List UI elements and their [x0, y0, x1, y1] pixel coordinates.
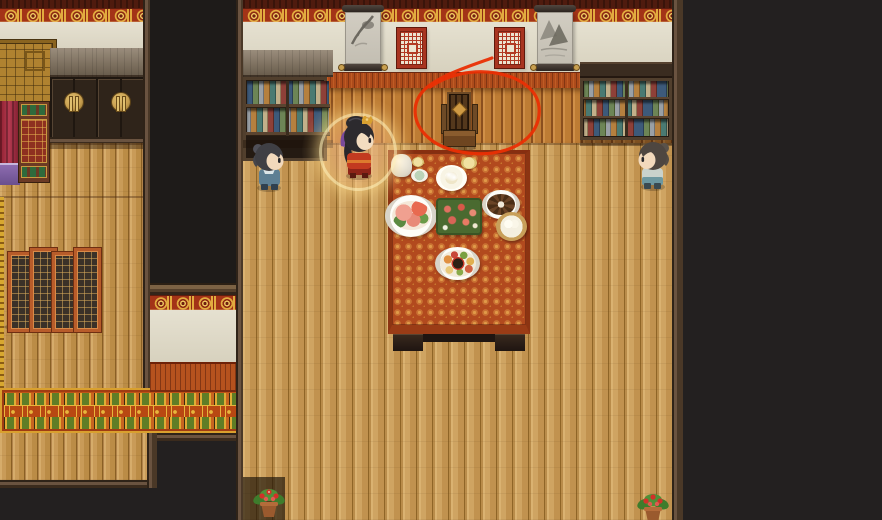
doorway-sill: [143, 283, 243, 295]
ink-art: [345, 12, 381, 64]
table-foot-left: [393, 334, 423, 351]
main-room-right-border: [672, 0, 683, 520]
bed-lattice-panel: [21, 119, 47, 163]
cabinet-base: [50, 137, 96, 143]
cabinet-unit-left[interactable]: [50, 48, 96, 143]
dish-bamboo-steamer: [496, 212, 527, 241]
bed-header-motif: [25, 51, 45, 71]
scroll-paper: [537, 12, 573, 64]
table-foot-right: [495, 334, 525, 351]
dish-small-cup: [412, 157, 424, 167]
cabinet-pull-left: [70, 97, 72, 111]
cabinet-pull-right: [123, 97, 125, 111]
bookshelf-top-slab: [243, 50, 333, 77]
cabinet-pull-right: [76, 97, 78, 111]
scroll-bottom-rod: [534, 64, 576, 71]
scroll-knob-right: [574, 65, 579, 70]
scroll-painting-left: [345, 5, 381, 71]
scroll-knob-left: [339, 65, 344, 70]
player-character[interactable]: [336, 116, 380, 180]
cabinet-doors[interactable]: [50, 77, 100, 141]
bed-canopy-header[interactable]: [0, 40, 56, 107]
cabinet-top-slab: [50, 48, 96, 77]
scroll-knob-left: [531, 65, 536, 70]
scroll-paper: [345, 12, 381, 64]
high-back-chair[interactable]: [441, 92, 478, 152]
cabinet-unit-right[interactable]: [96, 48, 143, 143]
dark-doorway-opening[interactable]: [150, 0, 236, 283]
carpet-bottom-row: [4, 417, 239, 429]
dish-teacup: [411, 169, 428, 182]
shelf-divider: [625, 81, 628, 136]
lattice-window-left: [397, 28, 426, 68]
carpet-bottom-border: [150, 433, 243, 441]
screen-panel-4: [74, 248, 101, 332]
main-room-left-border: [236, 0, 243, 520]
bed-side-panel: [18, 101, 50, 183]
flower-pot-left[interactable]: [252, 487, 286, 520]
game-viewport: [0, 0, 882, 520]
bookshelf-right[interactable]: [580, 62, 672, 146]
mid-wall-baseboard: [150, 362, 236, 392]
dish-side-dish: [461, 157, 477, 169]
left-floor-bottom-border: [0, 480, 157, 488]
dish-shrimp-platter: [385, 195, 437, 237]
scroll-bottom-rod: [342, 64, 384, 71]
cabinet-top-slab: [96, 48, 143, 77]
shelf-divider: [286, 81, 289, 136]
chair-seat: [443, 130, 476, 147]
floor-step-border: [147, 433, 157, 488]
cabinet-base: [96, 137, 143, 143]
cabinet-doors[interactable]: [96, 77, 147, 141]
scroll-knob-right: [382, 65, 387, 70]
scroll-top-rod: [342, 5, 384, 12]
bed-jade-bottom: [21, 166, 47, 178]
ink-art: [537, 12, 573, 64]
mid-left-border: [143, 0, 150, 388]
cabinet-moon-handle: [65, 93, 83, 111]
window-motif: [407, 43, 418, 54]
cabinet-pull-left: [117, 97, 119, 111]
cabinet-moon-handle: [112, 93, 130, 111]
bed-curtain: [0, 101, 20, 163]
dish-soup-bowl: [436, 165, 467, 191]
window-motif: [505, 43, 516, 54]
lattice-window-right: [495, 28, 524, 68]
mid-wall-plaster: [150, 310, 236, 362]
bed-jade-top: [21, 104, 47, 116]
dish-meat-platter: [436, 198, 482, 235]
bookshelf-top: [580, 62, 672, 78]
scroll-painting-right: [537, 5, 573, 71]
bed-quilt: [0, 163, 20, 185]
npc-right[interactable]: [634, 139, 672, 191]
carpet-top-row: [4, 393, 239, 405]
scroll-top-rod: [534, 5, 576, 12]
left-floor-seam: [0, 196, 143, 198]
carpet-edge-strip: [0, 197, 4, 388]
dish-banquet-platter: [435, 247, 480, 280]
flower-pot-right[interactable]: [636, 492, 670, 520]
folding-screen[interactable]: [8, 246, 100, 332]
carpet-runner: [0, 388, 243, 433]
npc-left[interactable]: [250, 140, 288, 192]
